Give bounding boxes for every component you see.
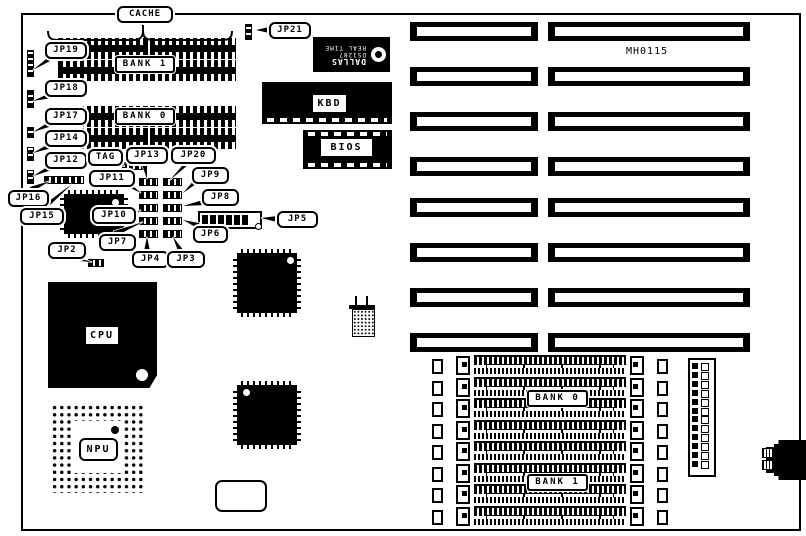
qfp2-pin1-dot: [287, 257, 294, 264]
callout-jp13: JP13: [126, 147, 168, 164]
simm-rail-tab: [657, 445, 668, 460]
power-pin: [692, 461, 698, 467]
simm-rail-tab: [657, 381, 668, 396]
power-pin: [692, 434, 698, 440]
dallas-part: DS1287: [324, 50, 366, 57]
power-pin: [692, 416, 698, 422]
cache-bank1-label: BANK 1: [115, 56, 175, 73]
isa-slot: [410, 198, 538, 217]
isa-slot: [548, 243, 750, 262]
jumper-block: [27, 170, 34, 184]
simm-pins-bottom: [474, 519, 626, 525]
simm-rail-tab: [657, 359, 668, 374]
motherboard-diagram: DALLAS DS1287 REAL TIME KBD BIOS CPU NPU: [0, 0, 806, 536]
power-pin: [701, 452, 709, 460]
callout-jp6: JP6: [193, 226, 228, 243]
jumper-block: [163, 204, 182, 212]
isa-slot-opening: [555, 117, 743, 126]
power-connector: [688, 358, 716, 477]
isa-slot: [410, 243, 538, 262]
kbd-pins: [267, 118, 387, 122]
isa-slot: [410, 333, 538, 352]
simm-socket: [444, 441, 656, 460]
simm-rail-tab: [657, 424, 668, 439]
simm-rail-tab: [657, 402, 668, 417]
power-pin: [692, 408, 698, 414]
jumper-block: [163, 230, 182, 238]
jumper-block: [163, 217, 182, 225]
simm-rail-tab: [432, 467, 443, 482]
dallas-logo-icon: [371, 47, 386, 62]
isa-slot-opening: [555, 248, 743, 257]
npu-label: NPU: [79, 438, 118, 461]
simm-pins-bottom: [474, 411, 626, 417]
isa-slot-opening: [417, 248, 531, 257]
callout-jp17: JP17: [45, 108, 87, 125]
power-pin: [701, 399, 709, 407]
isa-slot-opening: [417, 162, 531, 171]
simm-rail-tab: [432, 510, 443, 525]
isa-slot-opening: [417, 117, 531, 126]
simm-latch-right: [630, 378, 644, 397]
simm-latch-right: [630, 356, 644, 375]
jumper-block: [27, 90, 34, 108]
callout-jp8: JP8: [202, 189, 239, 206]
power-pin: [692, 452, 698, 458]
jumper-block: [27, 147, 34, 161]
jumper-block: [64, 176, 84, 184]
dallas-type: REAL TIME: [324, 43, 366, 50]
jumper-block: [139, 217, 158, 225]
power-pin: [701, 408, 709, 416]
power-pin: [701, 461, 709, 469]
isa-slot-opening: [555, 27, 743, 36]
kbd-chip-label: KBD: [313, 95, 346, 112]
isa-slot-opening: [555, 203, 743, 212]
qfp3-pin1-dot: [243, 389, 250, 396]
isa-slot: [548, 67, 750, 86]
power-pin: [692, 390, 698, 396]
isa-slot: [410, 157, 538, 176]
callout-jp18: JP18: [45, 80, 87, 97]
isa-slot-opening: [555, 293, 743, 302]
keyboard-din-connector: [774, 440, 806, 480]
simm-latch-right: [630, 464, 644, 483]
simm-rail-tab: [657, 510, 668, 525]
power-pin: [701, 381, 709, 389]
npu-pin1-dot: [111, 426, 119, 434]
power-pin: [701, 425, 709, 433]
jumper-block: [139, 230, 158, 238]
crystal: [352, 309, 375, 337]
isa-slot: [548, 198, 750, 217]
isa-slot: [548, 22, 750, 41]
callout-jp9: JP9: [192, 167, 229, 184]
callout-jp16: JP16: [8, 190, 49, 207]
cache-bank0-label: BANK 0: [115, 108, 175, 125]
power-pin: [701, 443, 709, 451]
callout-jp10: JP10: [92, 207, 136, 224]
qfp1-pin1-dot: [112, 199, 119, 206]
jumper-block: [27, 127, 34, 138]
simm-latch-right: [630, 507, 644, 526]
board-id-text: MH0115: [626, 46, 668, 57]
simm-pins-bottom: [474, 433, 626, 439]
simm-socket: [444, 355, 656, 374]
simm-latch-left: [456, 378, 470, 397]
callout-jp2: JP2: [48, 242, 86, 259]
power-pin: [692, 425, 698, 431]
isa-slot-opening: [417, 27, 531, 36]
simm-latch-left: [456, 399, 470, 418]
jumper-block: [163, 191, 182, 199]
callout-cache: CACHE: [117, 6, 173, 23]
isa-slot: [410, 67, 538, 86]
callout-jp19: JP19: [45, 42, 87, 59]
power-pin: [701, 434, 709, 442]
simm-latch-right: [630, 421, 644, 440]
power-pin: [692, 372, 698, 378]
simm-pins-bottom: [474, 454, 626, 460]
simm-rail-tab: [432, 424, 443, 439]
simm-bank1-label: BANK 1: [527, 474, 588, 491]
callout-jp4: JP4: [132, 251, 169, 268]
callout-jp12: JP12: [45, 152, 87, 169]
callout-jp3: JP3: [167, 251, 205, 268]
din-pin-block: [762, 448, 773, 458]
isa-slot-opening: [417, 203, 531, 212]
isa-slot: [548, 288, 750, 307]
simm-socket: [444, 506, 656, 525]
isa-slot: [548, 333, 750, 352]
bios-chip-label: BIOS: [321, 139, 372, 156]
isa-slot-opening: [417, 72, 531, 81]
simm-pins-bottom: [474, 497, 626, 503]
dallas-rtc-chip: DALLAS DS1287 REAL TIME: [313, 37, 390, 72]
din-pin-block: [762, 460, 773, 470]
jumper-block: [245, 24, 252, 40]
simm-latch-right: [630, 442, 644, 461]
dallas-rtc-print: DALLAS DS1287 REAL TIME: [313, 37, 390, 72]
power-pin: [692, 363, 698, 369]
simm-rail-tab: [657, 488, 668, 503]
isa-slot-opening: [417, 338, 531, 347]
power-pin: [701, 390, 709, 398]
cache-sram-chip: [150, 128, 236, 149]
cpu-label: CPU: [86, 327, 118, 344]
simm-latch-left: [456, 442, 470, 461]
bios-pins-top: [308, 132, 387, 136]
callout-jp21: JP21: [269, 22, 311, 39]
simm-rail-tab: [432, 402, 443, 417]
oscillator: [215, 480, 267, 512]
jumper-block: [44, 176, 64, 184]
simm-rail-tab: [432, 445, 443, 460]
callout-jp20: JP20: [171, 147, 216, 164]
jumper-block: [27, 50, 34, 77]
power-pin: [692, 381, 698, 387]
callout-jp15: JP15: [20, 208, 64, 225]
simm-rail-tab: [432, 359, 443, 374]
simm-latch-right: [630, 485, 644, 504]
jumper-block: [139, 178, 158, 186]
jumper-block: [88, 259, 104, 267]
callout-jp5: JP5: [277, 211, 318, 228]
simm-pins-bottom: [474, 368, 626, 374]
isa-slot: [410, 112, 538, 131]
callout-jp11: JP11: [89, 170, 135, 187]
simm-latch-right: [630, 399, 644, 418]
jumper-block: [139, 191, 158, 199]
power-pin: [692, 443, 698, 449]
callout-jp14: JP14: [45, 130, 87, 147]
callout-tag: TAG: [88, 149, 123, 166]
simm-rail-tab: [432, 488, 443, 503]
isa-slot-opening: [555, 162, 743, 171]
isa-slot-opening: [417, 293, 531, 302]
isa-slot: [548, 157, 750, 176]
simm-socket: [444, 420, 656, 439]
simm-latch-left: [456, 356, 470, 375]
bios-pins-bottom: [308, 163, 387, 167]
power-pin: [692, 399, 698, 405]
jumper-block: [139, 204, 158, 212]
power-pin: [701, 363, 709, 371]
dallas-brand: DALLAS: [324, 57, 366, 66]
power-pin: [701, 416, 709, 424]
simm-latch-left: [456, 421, 470, 440]
callout-jp7: JP7: [99, 234, 136, 251]
simm-rail-tab: [432, 381, 443, 396]
simm-bank0-label: BANK 0: [527, 390, 588, 407]
isa-slot: [548, 112, 750, 131]
simm-latch-left: [456, 507, 470, 526]
simm-latch-left: [456, 464, 470, 483]
isa-slot-opening: [555, 72, 743, 81]
simm-latch-left: [456, 485, 470, 504]
cpu-pin1-dot: [136, 369, 148, 381]
simm-socket-area: [432, 355, 668, 529]
power-pin: [701, 372, 709, 380]
simm-rail-tab: [657, 467, 668, 482]
jumper-block: [163, 178, 182, 186]
isa-slot: [410, 288, 538, 307]
isa-slot-opening: [555, 338, 743, 347]
isa-slot: [410, 22, 538, 41]
